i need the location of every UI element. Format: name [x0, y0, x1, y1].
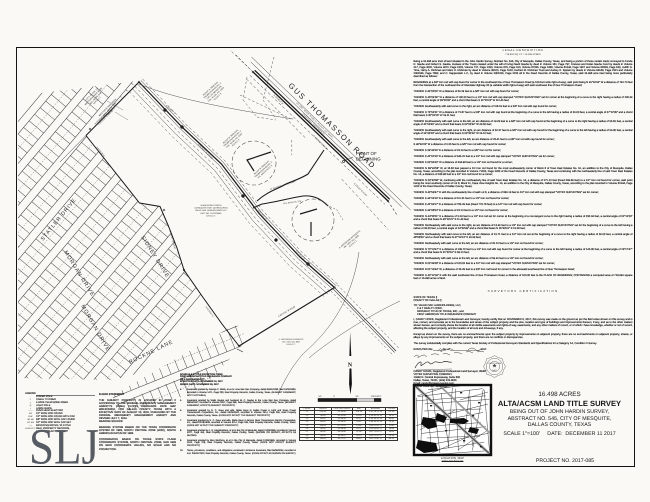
svg-text:SLJ: SLJ: [29, 420, 99, 476]
